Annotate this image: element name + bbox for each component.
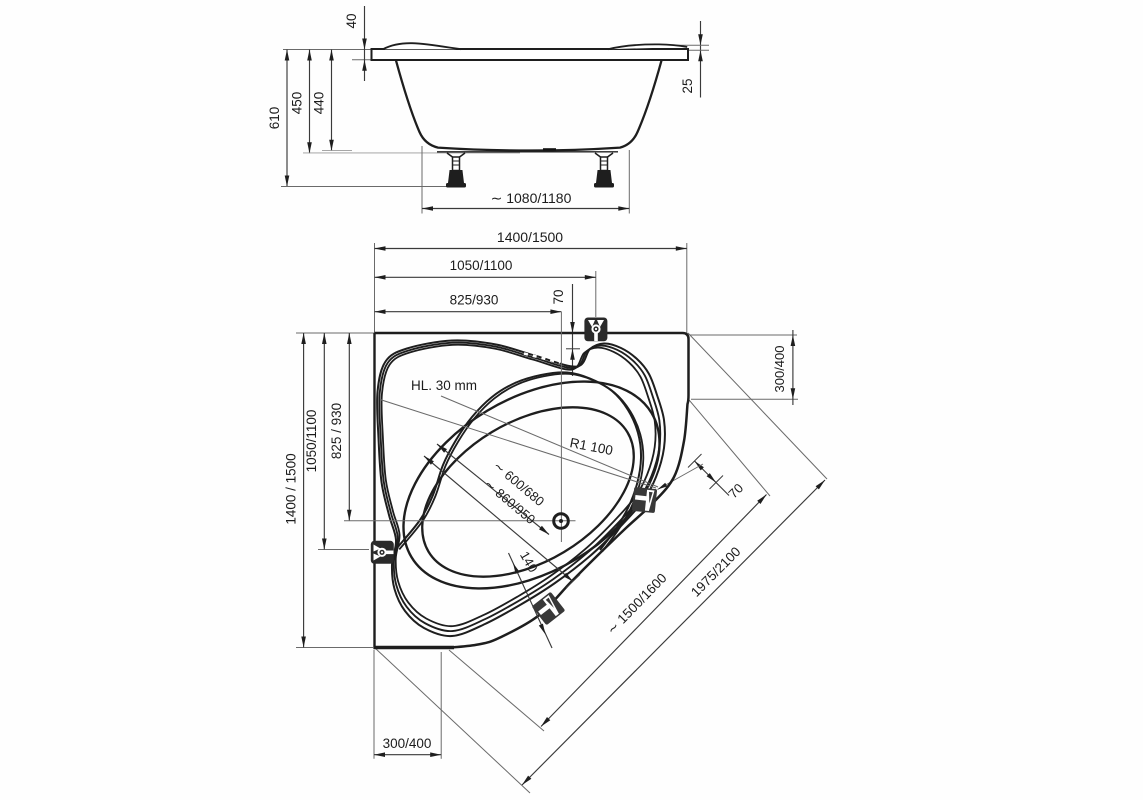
svg-text:825/930: 825/930 <box>450 293 499 308</box>
svg-text:1400 / 1500: 1400 / 1500 <box>284 453 299 524</box>
svg-text:450: 450 <box>290 92 305 115</box>
svg-text:40: 40 <box>344 13 359 28</box>
svg-text:∼ 1080/1180: ∼ 1080/1180 <box>491 190 572 206</box>
svg-text:1400/1500: 1400/1500 <box>497 229 563 245</box>
svg-text:300/400: 300/400 <box>383 736 432 751</box>
svg-text:825 / 930: 825 / 930 <box>329 403 344 459</box>
svg-text:300/400: 300/400 <box>772 346 787 393</box>
svg-text:HL. 30 mm: HL. 30 mm <box>411 378 477 393</box>
svg-text:1050/1100: 1050/1100 <box>304 410 319 473</box>
svg-text:1050/1100: 1050/1100 <box>450 258 513 273</box>
svg-text:610: 610 <box>267 107 282 130</box>
svg-text:70: 70 <box>551 289 566 304</box>
svg-text:440: 440 <box>312 92 327 115</box>
svg-text:25: 25 <box>680 78 695 93</box>
